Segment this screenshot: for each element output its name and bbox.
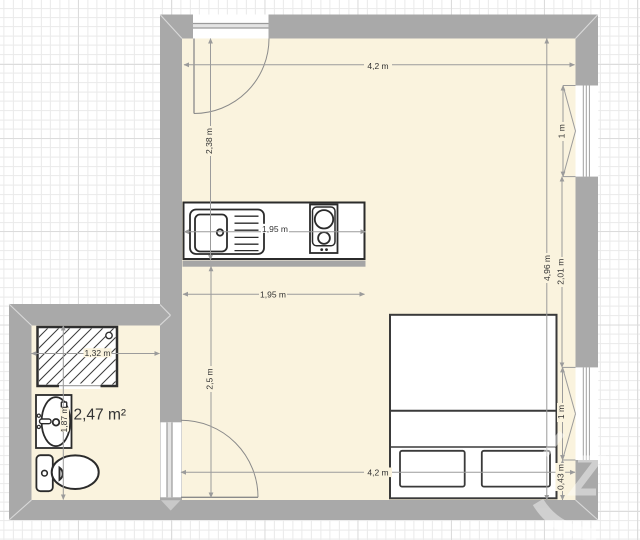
svg-text:4,2 m: 4,2 m: [367, 467, 388, 477]
svg-text:0,43 m: 0,43 m: [556, 464, 566, 490]
svg-text:2,5 m: 2,5 m: [205, 368, 215, 389]
svg-text:1 m: 1 m: [557, 124, 567, 138]
svg-text:1 m: 1 m: [556, 405, 566, 419]
svg-text:2,01 m: 2,01 m: [556, 259, 566, 285]
svg-text:4,2 m: 4,2 m: [367, 61, 388, 71]
svg-text:1,95 m: 1,95 m: [260, 289, 286, 299]
svg-text:1,87 m: 1,87 m: [59, 407, 69, 433]
svg-text:2,47 m²: 2,47 m²: [74, 407, 127, 424]
svg-text:1,32 m: 1,32 m: [85, 348, 111, 358]
svg-text:1,95 m: 1,95 m: [262, 224, 288, 234]
svg-text:4,96 m: 4,96 m: [542, 255, 552, 281]
svg-text:2,38 m: 2,38 m: [204, 128, 214, 154]
